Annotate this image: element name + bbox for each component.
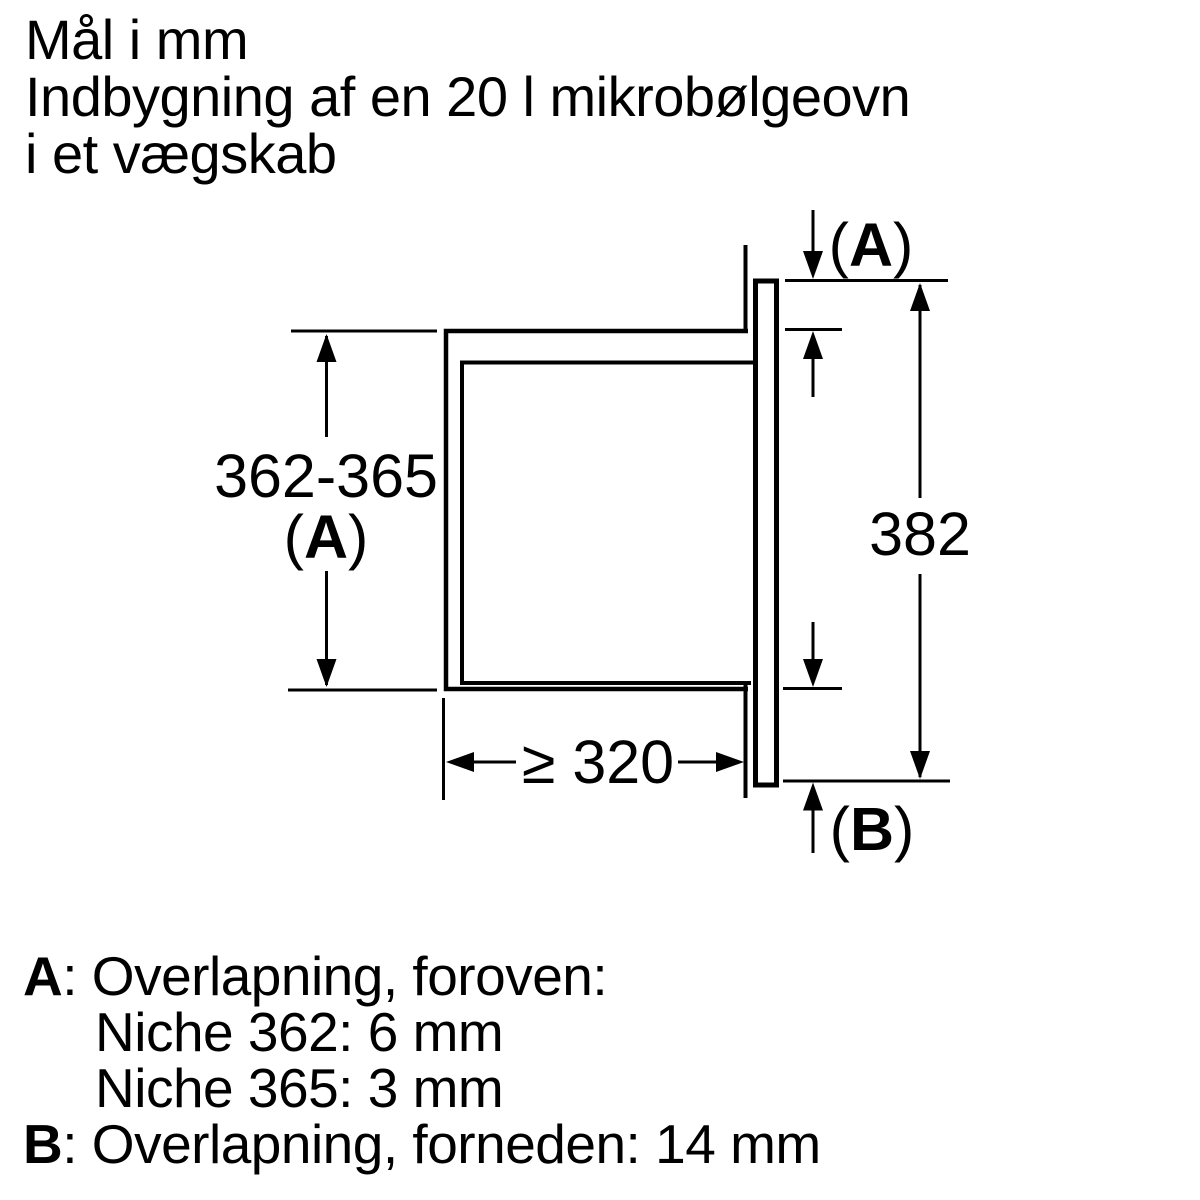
cabinet-inner-outline	[462, 363, 755, 684]
overlap-bottom-arrow-up	[803, 783, 823, 811]
niche-height-value: 362-365	[214, 442, 438, 510]
dim-niche-height-arrow-up	[317, 334, 337, 362]
dim-niche-height-arrow-down	[317, 659, 337, 687]
legend-text-a: : Overlapning, foroven:	[62, 945, 607, 1007]
dim-depth-arrow-right	[716, 752, 744, 772]
dim-frame-height-arrow-down	[910, 751, 930, 779]
overlap-top-arrow-down	[803, 251, 823, 279]
overlap-bottom-label: (B)	[830, 795, 915, 863]
overlap-top-label-letter: A	[849, 211, 893, 279]
legend-key-b: B	[23, 1113, 62, 1175]
legend-line-b: B: Overlapning, forneden: 14 mm	[23, 1116, 821, 1172]
legend-line-niche-365: Niche 365: 3 mm	[23, 1060, 821, 1116]
niche-height-label: (A)	[284, 503, 369, 571]
overlap-bottom-arrow-down	[803, 659, 823, 687]
niche-height-label-close: )	[348, 503, 368, 571]
dim-depth-arrow-left	[446, 752, 474, 772]
overlap-top-arrow-up	[803, 331, 823, 359]
overlap-bottom-label-letter: B	[850, 795, 894, 863]
overlap-bottom-label-open: (	[830, 795, 850, 863]
overlap-top-label: (A)	[829, 211, 914, 279]
overlap-top-label-open: (	[829, 211, 849, 279]
legend-line-a: A: Overlapning, foroven:	[23, 948, 821, 1004]
legend-key-a: A	[23, 945, 62, 1007]
overlap-top-label-close: )	[893, 211, 913, 279]
legend-line-niche-362: Niche 362: 6 mm	[23, 1004, 821, 1060]
frame-height-value: 382	[869, 500, 971, 568]
microwave-front-frame	[756, 281, 777, 785]
wall-cabinet	[446, 245, 755, 798]
legend-text-b: : Overlapning, forneden: 14 mm	[62, 1113, 820, 1175]
niche-height-label-letter: A	[304, 503, 348, 571]
legend: A: Overlapning, foroven: Niche 362: 6 mm…	[23, 948, 821, 1172]
niche-height-label-open: (	[284, 503, 304, 571]
niche-depth-value: ≥ 320	[522, 728, 674, 796]
cabinet-outer-outline	[446, 331, 748, 689]
page: Mål i mm Indbygning af en 20 l mikrobølg…	[0, 0, 1200, 1200]
overlap-bottom-label-close: )	[894, 795, 914, 863]
dim-frame-height-arrow-up	[910, 283, 930, 311]
